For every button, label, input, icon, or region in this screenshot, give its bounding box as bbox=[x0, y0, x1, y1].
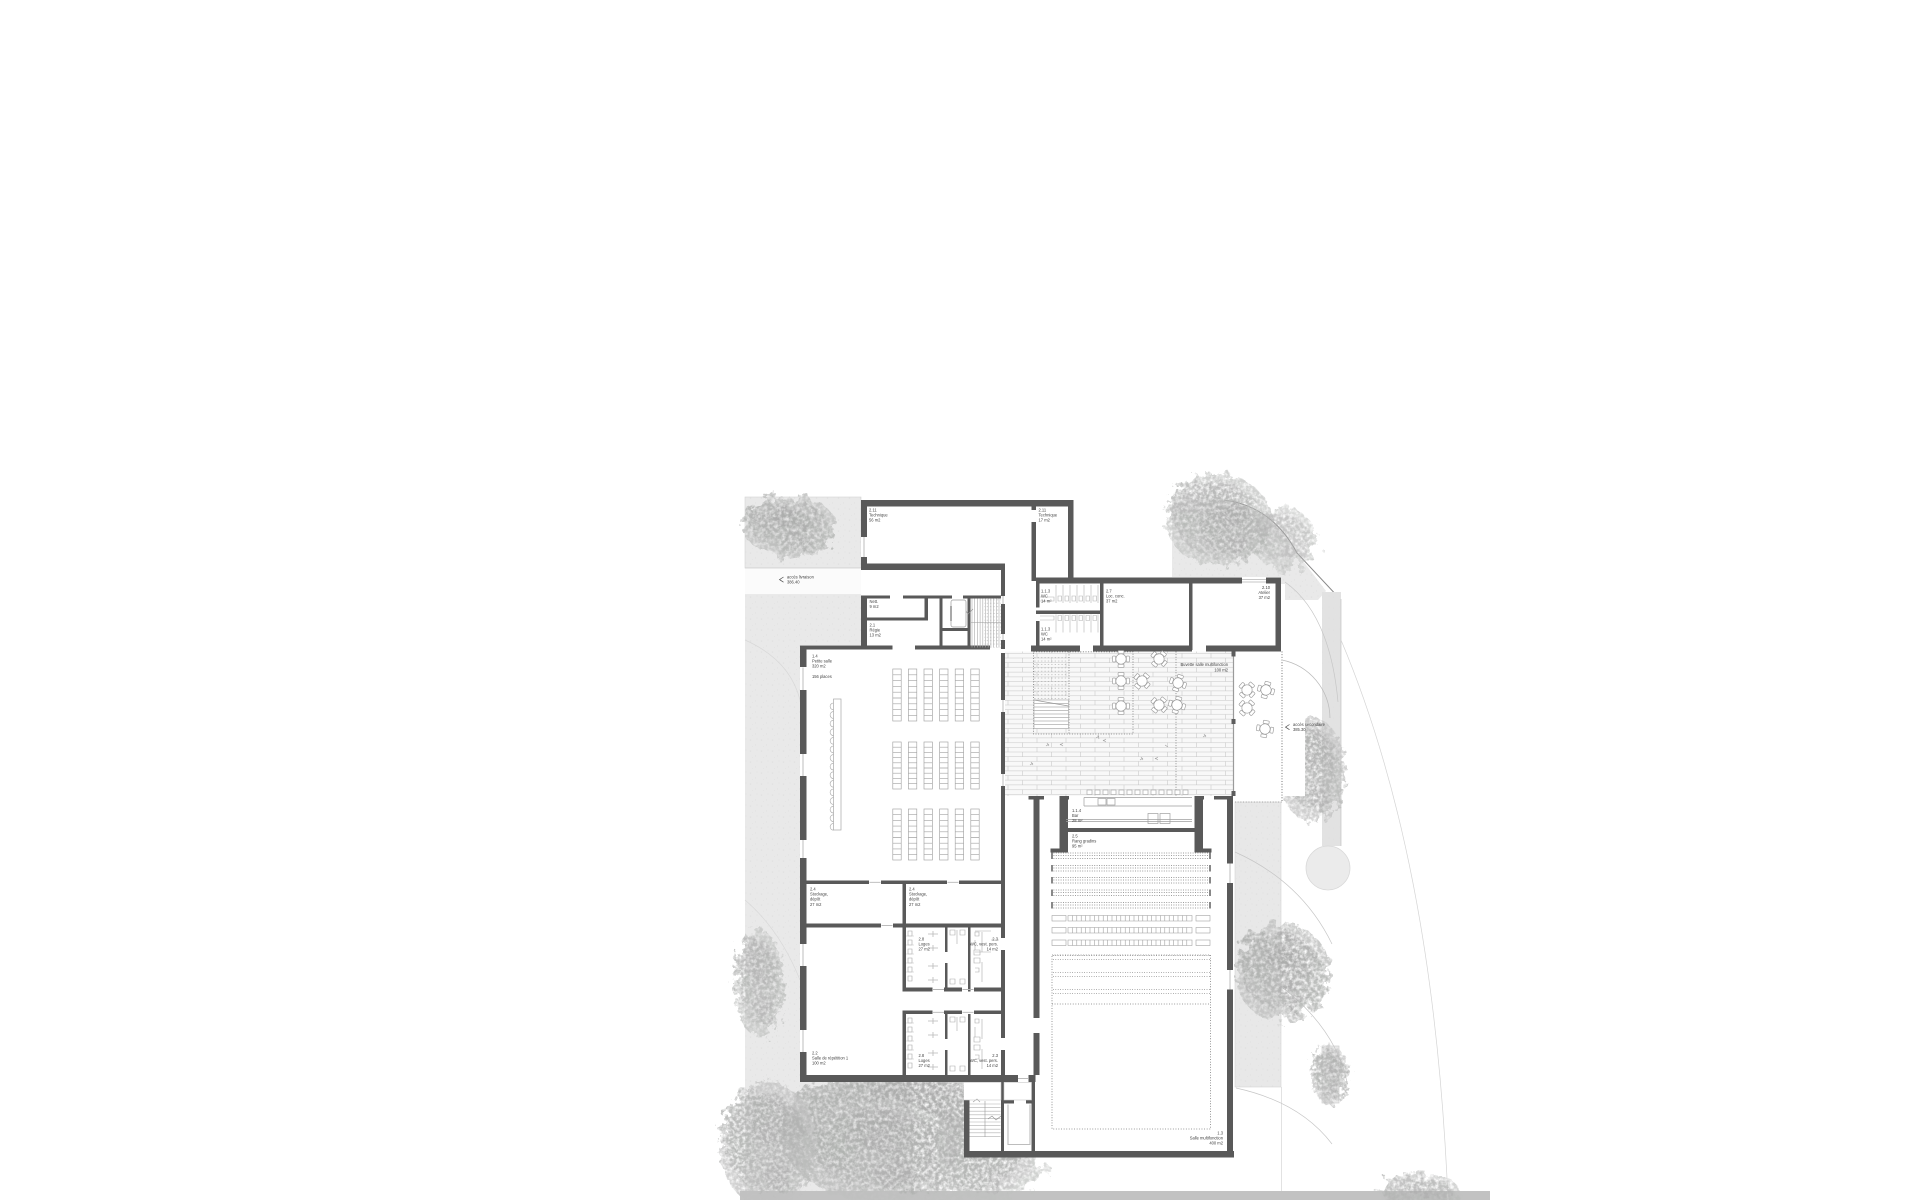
svg-text:37 m2: 37 m2 bbox=[1106, 599, 1118, 604]
svg-text:27 m2: 27 m2 bbox=[919, 1063, 931, 1068]
svg-text:386.40: 386.40 bbox=[787, 580, 800, 585]
svg-text:56 m2: 56 m2 bbox=[869, 518, 881, 523]
svg-text:28 m²: 28 m² bbox=[1072, 818, 1083, 823]
svg-text:95 m²: 95 m² bbox=[1072, 844, 1083, 849]
svg-text:17 m2: 17 m2 bbox=[1039, 518, 1051, 523]
svg-text:9 m2: 9 m2 bbox=[870, 604, 880, 609]
svg-text:14 m2: 14 m2 bbox=[987, 1063, 999, 1068]
svg-text:156 places: 156 places bbox=[812, 674, 832, 679]
svg-text:Buvette salle multifonction: Buvette salle multifonction bbox=[1180, 662, 1228, 667]
svg-text:100 m2: 100 m2 bbox=[1214, 668, 1228, 673]
svg-text:100 m2: 100 m2 bbox=[812, 1061, 826, 1066]
svg-text:27 m2: 27 m2 bbox=[810, 902, 822, 907]
svg-text:14 m²: 14 m² bbox=[1041, 599, 1052, 604]
svg-text:37 m2: 37 m2 bbox=[1259, 595, 1271, 600]
svg-text:27 m2: 27 m2 bbox=[919, 947, 931, 952]
svg-text:400 m2: 400 m2 bbox=[1209, 1141, 1223, 1146]
svg-text:14 m²: 14 m² bbox=[1041, 637, 1052, 642]
svg-text:14 m2: 14 m2 bbox=[987, 947, 999, 952]
svg-text:320 m2: 320 m2 bbox=[812, 664, 826, 669]
svg-text:27 m2: 27 m2 bbox=[909, 902, 921, 907]
svg-text:13 m2: 13 m2 bbox=[870, 633, 882, 638]
svg-text:385.30: 385.30 bbox=[1293, 727, 1306, 732]
